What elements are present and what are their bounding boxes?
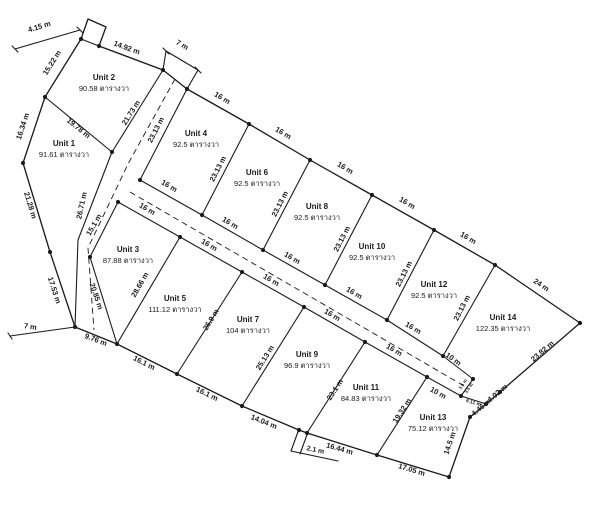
vertex-dot xyxy=(297,428,301,432)
unit-area: 92.5 ตารางวา xyxy=(294,213,340,222)
vertex-dot xyxy=(471,377,475,381)
unit-name: Unit 3 xyxy=(117,245,140,254)
vertex-dot xyxy=(305,431,309,435)
unit-area: 87.88 ตารางวา xyxy=(103,256,153,265)
unit-area: 91.61 ตารางวา xyxy=(39,150,89,159)
unit-name: Unit 7 xyxy=(237,315,260,324)
unit-name: Unit 2 xyxy=(93,73,116,82)
unit-name: Unit 13 xyxy=(420,413,447,422)
unit-area: 92.5 ตารางวา xyxy=(234,179,280,188)
vertex-dot xyxy=(578,321,582,325)
survey-plan-drawing: 4.15 m14.92 m7 m15.22 m16.34 m19.78 m21.… xyxy=(0,0,600,506)
vertex-dot xyxy=(247,122,251,126)
vertex-dot xyxy=(261,248,265,252)
vertex-dot xyxy=(175,372,179,376)
vertex-dot xyxy=(138,178,142,182)
unit-area: 92.5 ตารางวา xyxy=(411,291,457,300)
unit-area: 122.35 ตารางวา xyxy=(476,324,530,333)
unit-area: 90.58 ตารางวา xyxy=(79,84,129,93)
vertex-dot xyxy=(110,150,114,154)
vertex-dot xyxy=(73,325,77,329)
survey-plan-canvas: 4.15 m14.92 m7 m15.22 m16.34 m19.78 m21.… xyxy=(0,0,600,506)
vertex-dot xyxy=(323,283,327,287)
vertex-dot xyxy=(493,263,497,267)
vertex-dot xyxy=(161,68,165,72)
vertex-dot xyxy=(240,404,244,408)
vertex-dot xyxy=(385,318,389,322)
unit-name: Unit 14 xyxy=(490,313,517,322)
vertex-dot xyxy=(375,453,379,457)
vertex-dot xyxy=(185,87,189,91)
unit-area: 96.9 ตารางวา xyxy=(284,361,330,370)
unit-name: Unit 5 xyxy=(164,294,187,303)
vertex-dot xyxy=(425,375,429,379)
vertex-dot xyxy=(240,270,244,274)
vertex-dot xyxy=(363,340,367,344)
vertex-dot xyxy=(88,255,92,259)
vertex-dot xyxy=(43,95,47,99)
vertex-dot xyxy=(200,213,204,217)
unit-area: 92.5 ตารางวา xyxy=(349,253,395,262)
dimension-label: 7 m xyxy=(23,321,37,332)
vertex-dot xyxy=(432,228,436,232)
vertex-dot xyxy=(459,394,463,398)
unit-name: Unit 12 xyxy=(421,280,448,289)
unit-area: 92.5 ตารางวา xyxy=(173,140,219,149)
vertex-dot xyxy=(302,305,306,309)
vertex-dot xyxy=(115,342,119,346)
unit-area: 84.83 ตารางวา xyxy=(341,394,391,403)
unit-area: 111.12 ตารางวา xyxy=(148,305,201,314)
vertex-dot xyxy=(178,235,182,239)
unit-name: Unit 11 xyxy=(353,383,380,392)
vertex-dot xyxy=(21,161,25,165)
unit-name: Unit 4 xyxy=(185,129,208,138)
vertex-dot xyxy=(370,193,374,197)
vertex-dot xyxy=(308,158,312,162)
vertex-dot xyxy=(97,44,101,48)
unit-area: 104 ตารางวา xyxy=(226,326,270,335)
vertex-dot xyxy=(48,250,52,254)
unit-area: 75.12 ตารางวา xyxy=(408,424,458,433)
unit-name: Unit 6 xyxy=(246,168,269,177)
unit-name: Unit 9 xyxy=(296,350,319,359)
vertex-dot xyxy=(116,200,120,204)
unit-name: Unit 10 xyxy=(359,242,386,251)
unit-name: Unit 8 xyxy=(306,202,329,211)
vertex-dot xyxy=(468,415,472,419)
unit-name: Unit 1 xyxy=(53,139,76,148)
vertex-dot xyxy=(79,37,83,41)
vertex-dot xyxy=(447,475,451,479)
